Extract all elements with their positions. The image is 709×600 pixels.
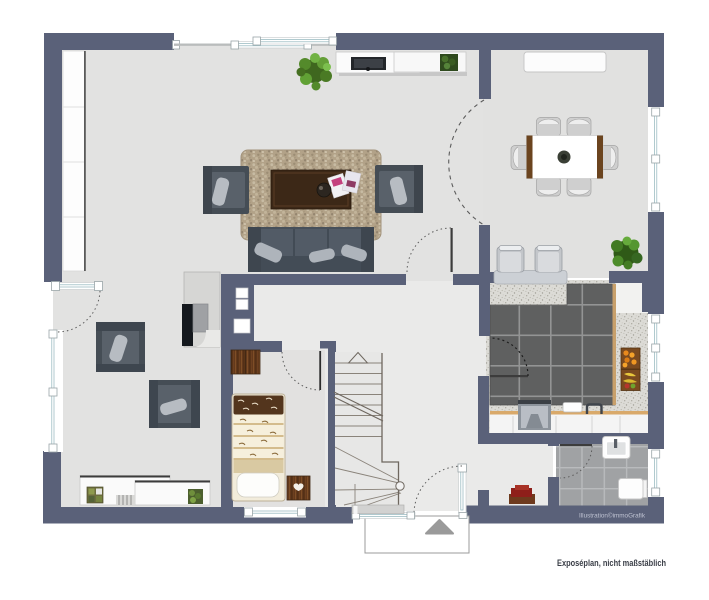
svg-text:Exposéplan, nicht maßstäblich: Exposéplan, nicht maßstäblich [557,558,666,569]
svg-text:Illustration©immoGrafik: Illustration©immoGrafik [579,513,646,520]
